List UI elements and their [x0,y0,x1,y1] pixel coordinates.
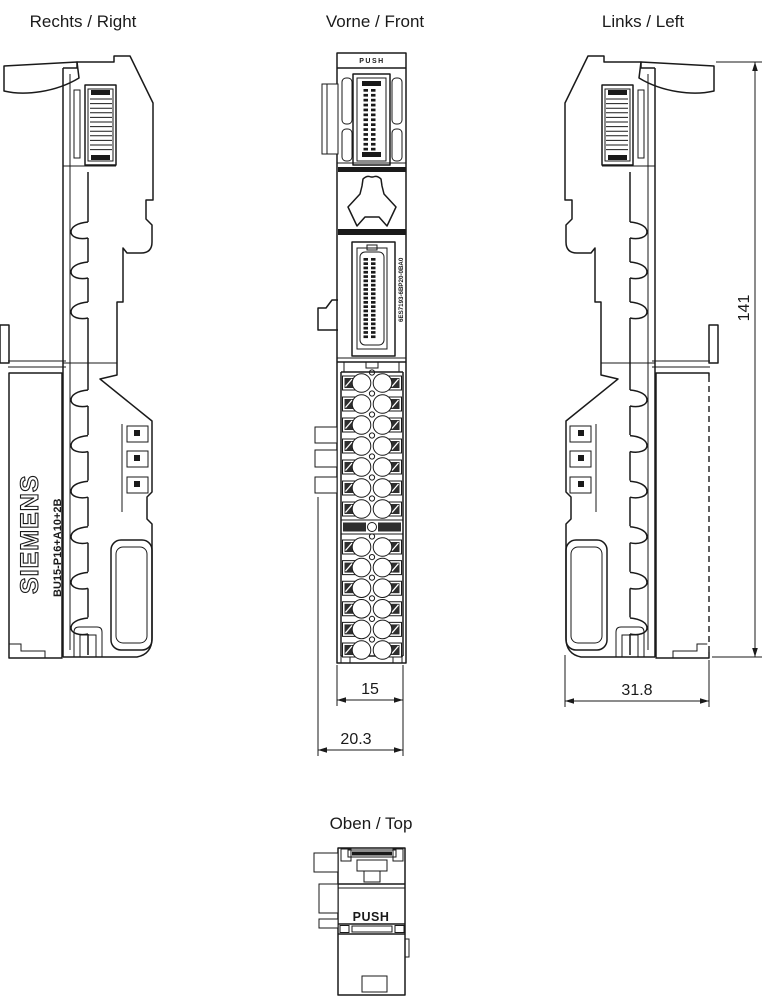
top-view-push-label: PUSH [353,910,390,924]
dim-terminal-width: 15 [361,681,379,698]
dim-height: 141 [736,295,753,322]
view-label-top: Oben / Top [330,814,413,833]
front-top-button-label: PUSH [359,58,384,65]
article-number-text: 6ES7193-6BP20-0BA0 [398,257,405,322]
dim-side-depth: 31.8 [621,682,652,699]
view-label-right: Rechts / Right [30,12,137,31]
view-label-front: Vorne / Front [326,12,425,31]
model-number-text: BU15-P16+A10+2B [52,498,64,597]
technical-drawing-page: SIEMENS BU15-P16+A10+2B PUSH [0,0,770,1000]
view-label-left: Links / Left [602,12,684,31]
siemens-logo-text: SIEMENS [16,474,44,594]
dim-total-front-width: 20.3 [340,731,371,748]
drawing-canvas: SIEMENS BU15-P16+A10+2B PUSH [0,0,770,1000]
